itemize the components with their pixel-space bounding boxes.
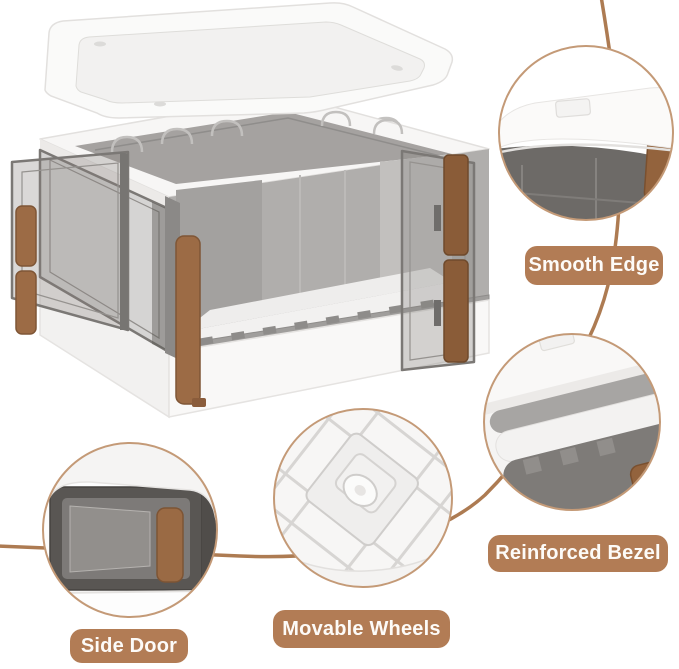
storage-box-illustration xyxy=(12,3,489,417)
callout-label-smooth-edge: Smooth Edge xyxy=(525,246,663,285)
inset-handle-brown xyxy=(157,508,183,582)
right-door-hinge-strip-lower xyxy=(444,260,468,362)
box-lid xyxy=(45,3,452,118)
left-door-open xyxy=(12,152,128,334)
callout-label-movable-wheels: Movable Wheels xyxy=(273,610,450,648)
left-door-handle-lower xyxy=(16,271,36,334)
right-door-hinge-strip xyxy=(444,155,468,255)
right-door-open xyxy=(402,151,474,370)
callout-label-side-door: Side Door xyxy=(70,629,188,663)
left-door-handle xyxy=(16,206,36,266)
product-feature-image: Smooth Edge Reinforced Bezel Movable Whe… xyxy=(0,0,679,669)
callout-label-reinforced-bezel: Reinforced Bezel xyxy=(488,535,668,572)
